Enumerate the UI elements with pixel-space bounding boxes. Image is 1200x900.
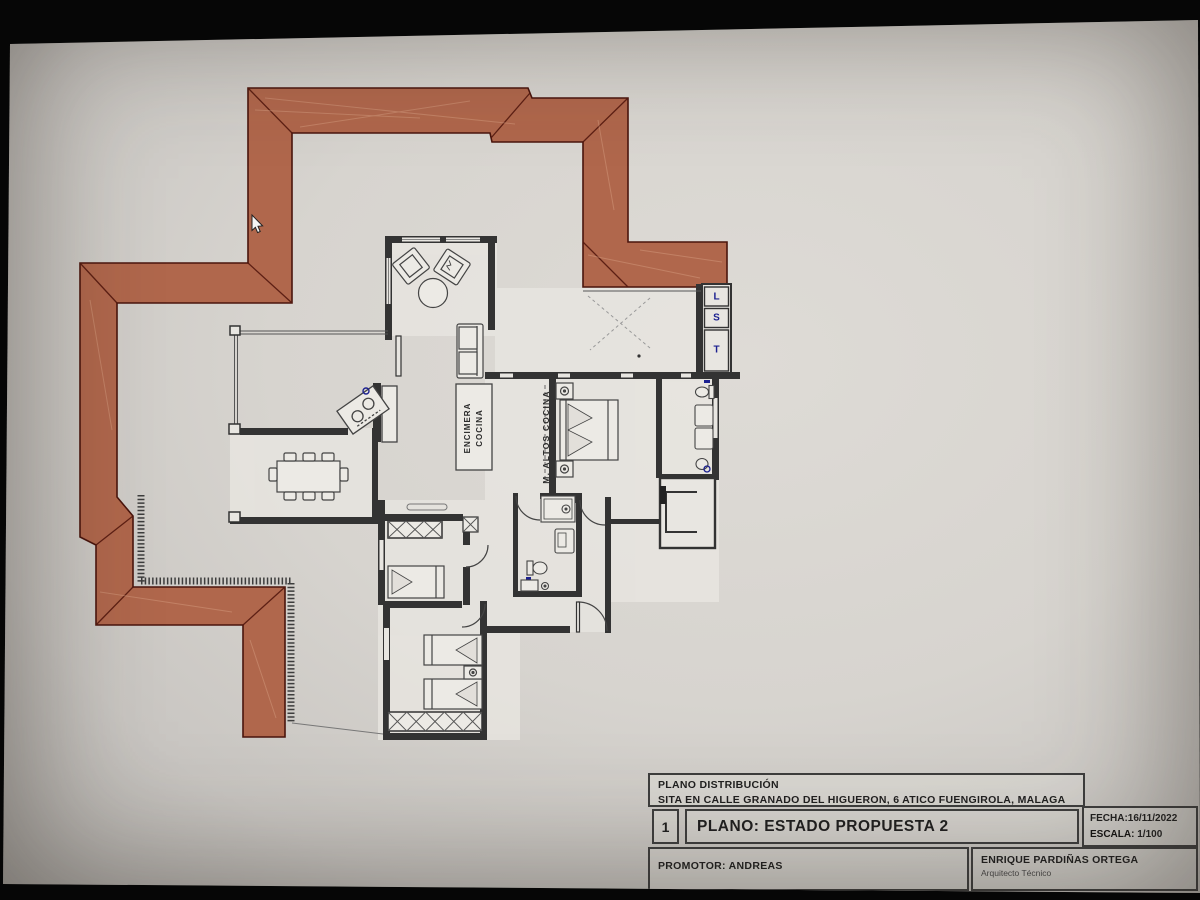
architect-title: Arquitecto Técnico <box>981 868 1188 878</box>
chair <box>340 468 348 481</box>
appliance-letter-t: T <box>713 345 719 356</box>
sofa <box>457 324 483 378</box>
architect-name: ENRIQUE PARDIÑAS ORTEGA <box>981 854 1188 866</box>
appliance-letter-l: L <box>713 291 719 302</box>
label-line: COCINA <box>474 403 486 454</box>
clothesline-dot <box>637 354 640 357</box>
photo-of-screen: { "colors": { "roof": "#b0674c", "roof_e… <box>0 0 1200 900</box>
chair <box>284 453 296 461</box>
chair <box>269 468 277 481</box>
toilet-blue-mark <box>704 380 710 383</box>
date-text: FECHA:16/11/2022 <box>1090 811 1190 827</box>
floor-plan-drawing <box>0 0 1200 900</box>
toilet-tank <box>527 561 533 575</box>
chair <box>322 492 334 500</box>
drawing-sheet: ENCIMERA COCINA M. ALTOS COCINA L S T PL… <box>0 0 1200 900</box>
site-address: SITA EN CALLE GRANADO DEL HIGUERON, 6 AT… <box>658 793 1075 808</box>
cabinet <box>521 580 538 591</box>
doc-title: PLANO DISTRIBUCIÓN <box>658 778 1075 793</box>
scale-text: ESCALA: 1/100 <box>1090 827 1190 843</box>
sheet-number-box: 1 <box>652 809 679 844</box>
label-encimera-cocina: ENCIMERA COCINA <box>462 403 486 454</box>
promoter-box: PROMOTOR: ANDREAS <box>648 847 969 891</box>
bidet <box>696 459 708 470</box>
plan-name-box: PLANO: ESTADO PROPUESTA 2 <box>685 809 1079 844</box>
label-line: ENCIMERA <box>462 403 474 454</box>
toilet <box>533 562 547 574</box>
chair <box>303 453 315 461</box>
vanity-sink <box>695 428 713 449</box>
toilet <box>696 387 709 397</box>
vanity-sink <box>695 405 713 426</box>
title-box: PLANO DISTRIBUCIÓN SITA EN CALLE GRANADO… <box>648 773 1085 807</box>
architect-box: ENRIQUE PARDIÑAS ORTEGA Arquitecto Técni… <box>971 847 1198 891</box>
scale-label: ESCALA: <box>1090 829 1134 840</box>
date-scale-box: FECHA:16/11/2022 ESCALA: 1/100 <box>1082 806 1198 847</box>
label-m-altos-cocina: M. ALTOS COCINA <box>541 390 551 483</box>
chair <box>303 492 315 500</box>
appliance-letter-s: S <box>713 313 720 324</box>
terrace-edge-line <box>292 723 383 734</box>
chair <box>322 453 334 461</box>
round-table <box>419 279 448 308</box>
dining-table <box>277 461 340 492</box>
scale-value: 1/100 <box>1137 829 1162 840</box>
kitchen-counter <box>382 386 397 442</box>
chair <box>284 492 296 500</box>
stair-shaft <box>660 478 715 548</box>
